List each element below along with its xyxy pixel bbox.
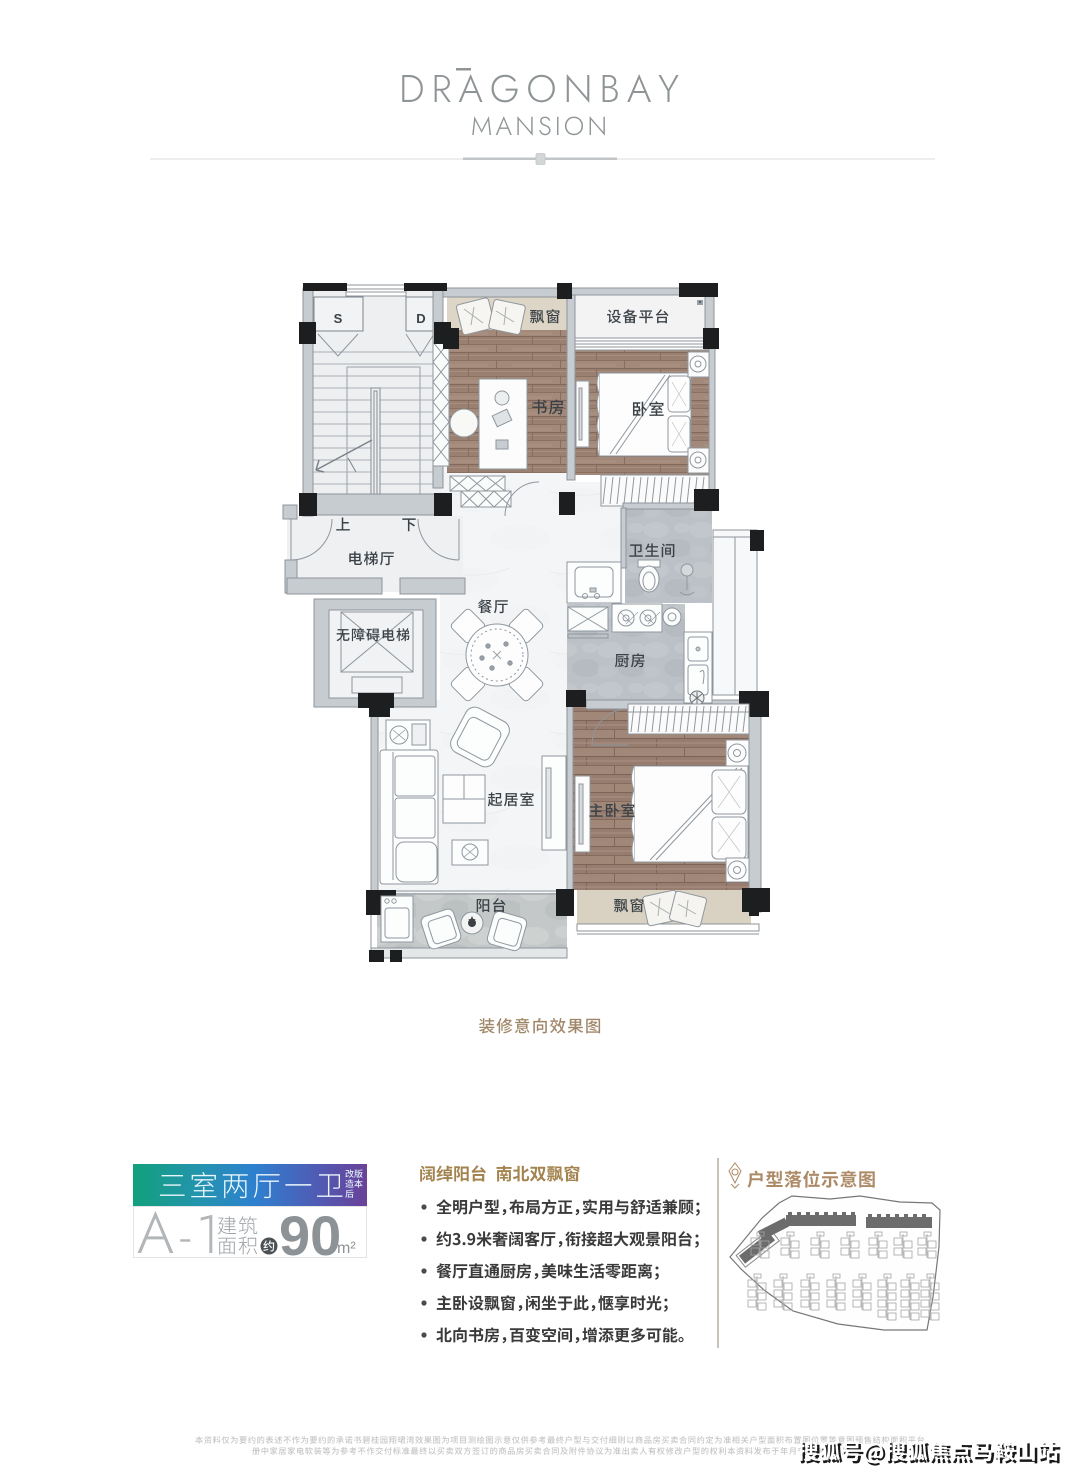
svg-text:m²: m² xyxy=(337,1240,356,1257)
svg-text:90: 90 xyxy=(279,1204,341,1267)
svg-text:S: S xyxy=(334,311,343,326)
svg-text:D: D xyxy=(416,311,425,326)
